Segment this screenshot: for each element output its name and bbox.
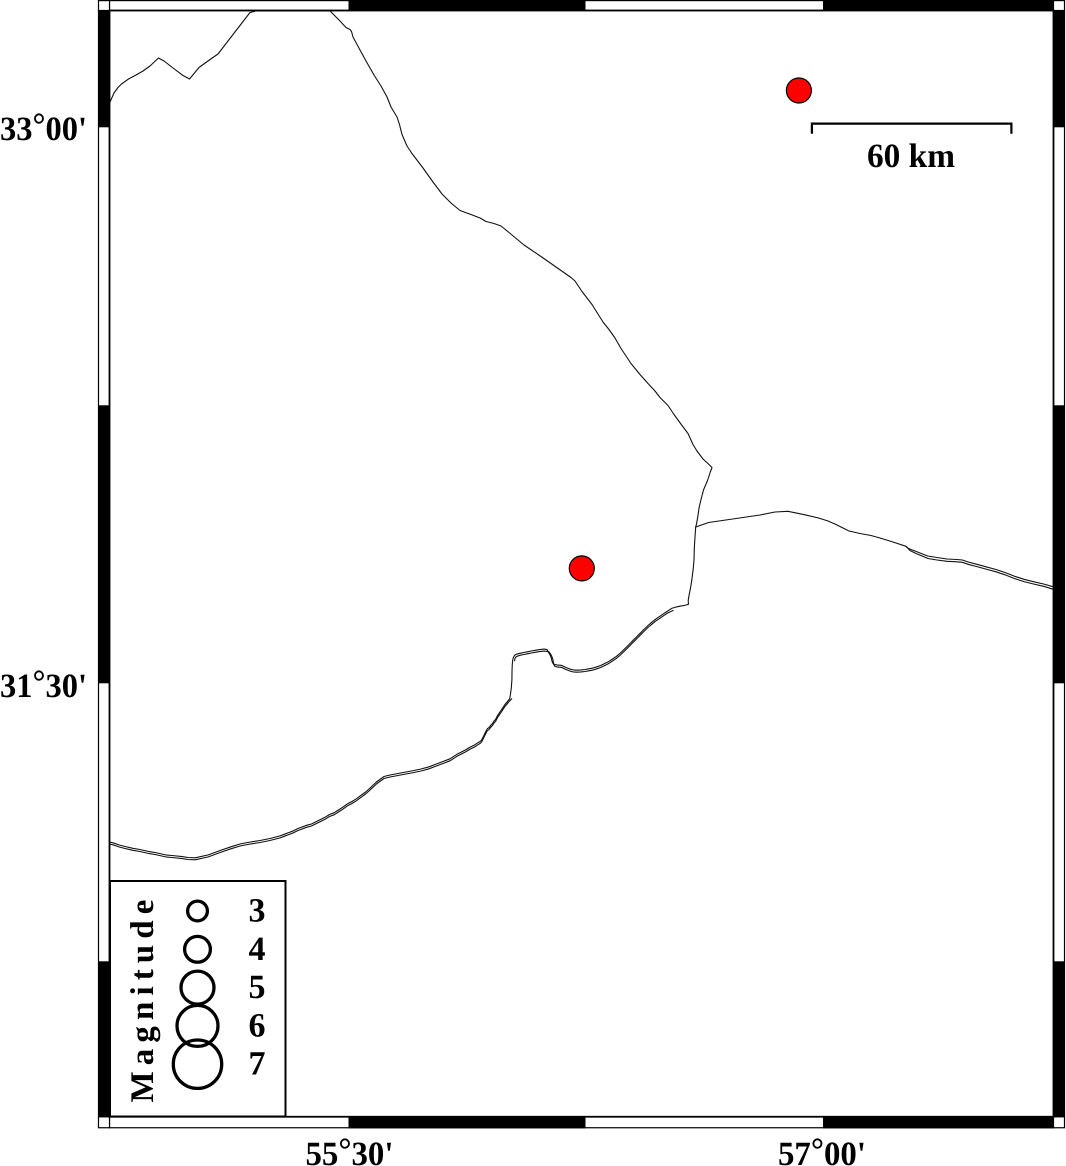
- svg-text:31°30': 31°30': [0, 664, 87, 705]
- svg-text:57°00': 57°00': [778, 1132, 866, 1166]
- svg-text:55°30': 55°30': [306, 1132, 394, 1166]
- svg-text:Magnitude: Magnitude: [125, 894, 161, 1103]
- svg-text:4: 4: [249, 931, 266, 968]
- svg-text:5: 5: [249, 969, 266, 1006]
- svg-text:33°00': 33°00': [0, 107, 87, 148]
- svg-text:3: 3: [249, 893, 266, 930]
- svg-text:60 km: 60 km: [867, 138, 955, 175]
- svg-text:6: 6: [249, 1007, 266, 1044]
- svg-text:7: 7: [249, 1046, 266, 1083]
